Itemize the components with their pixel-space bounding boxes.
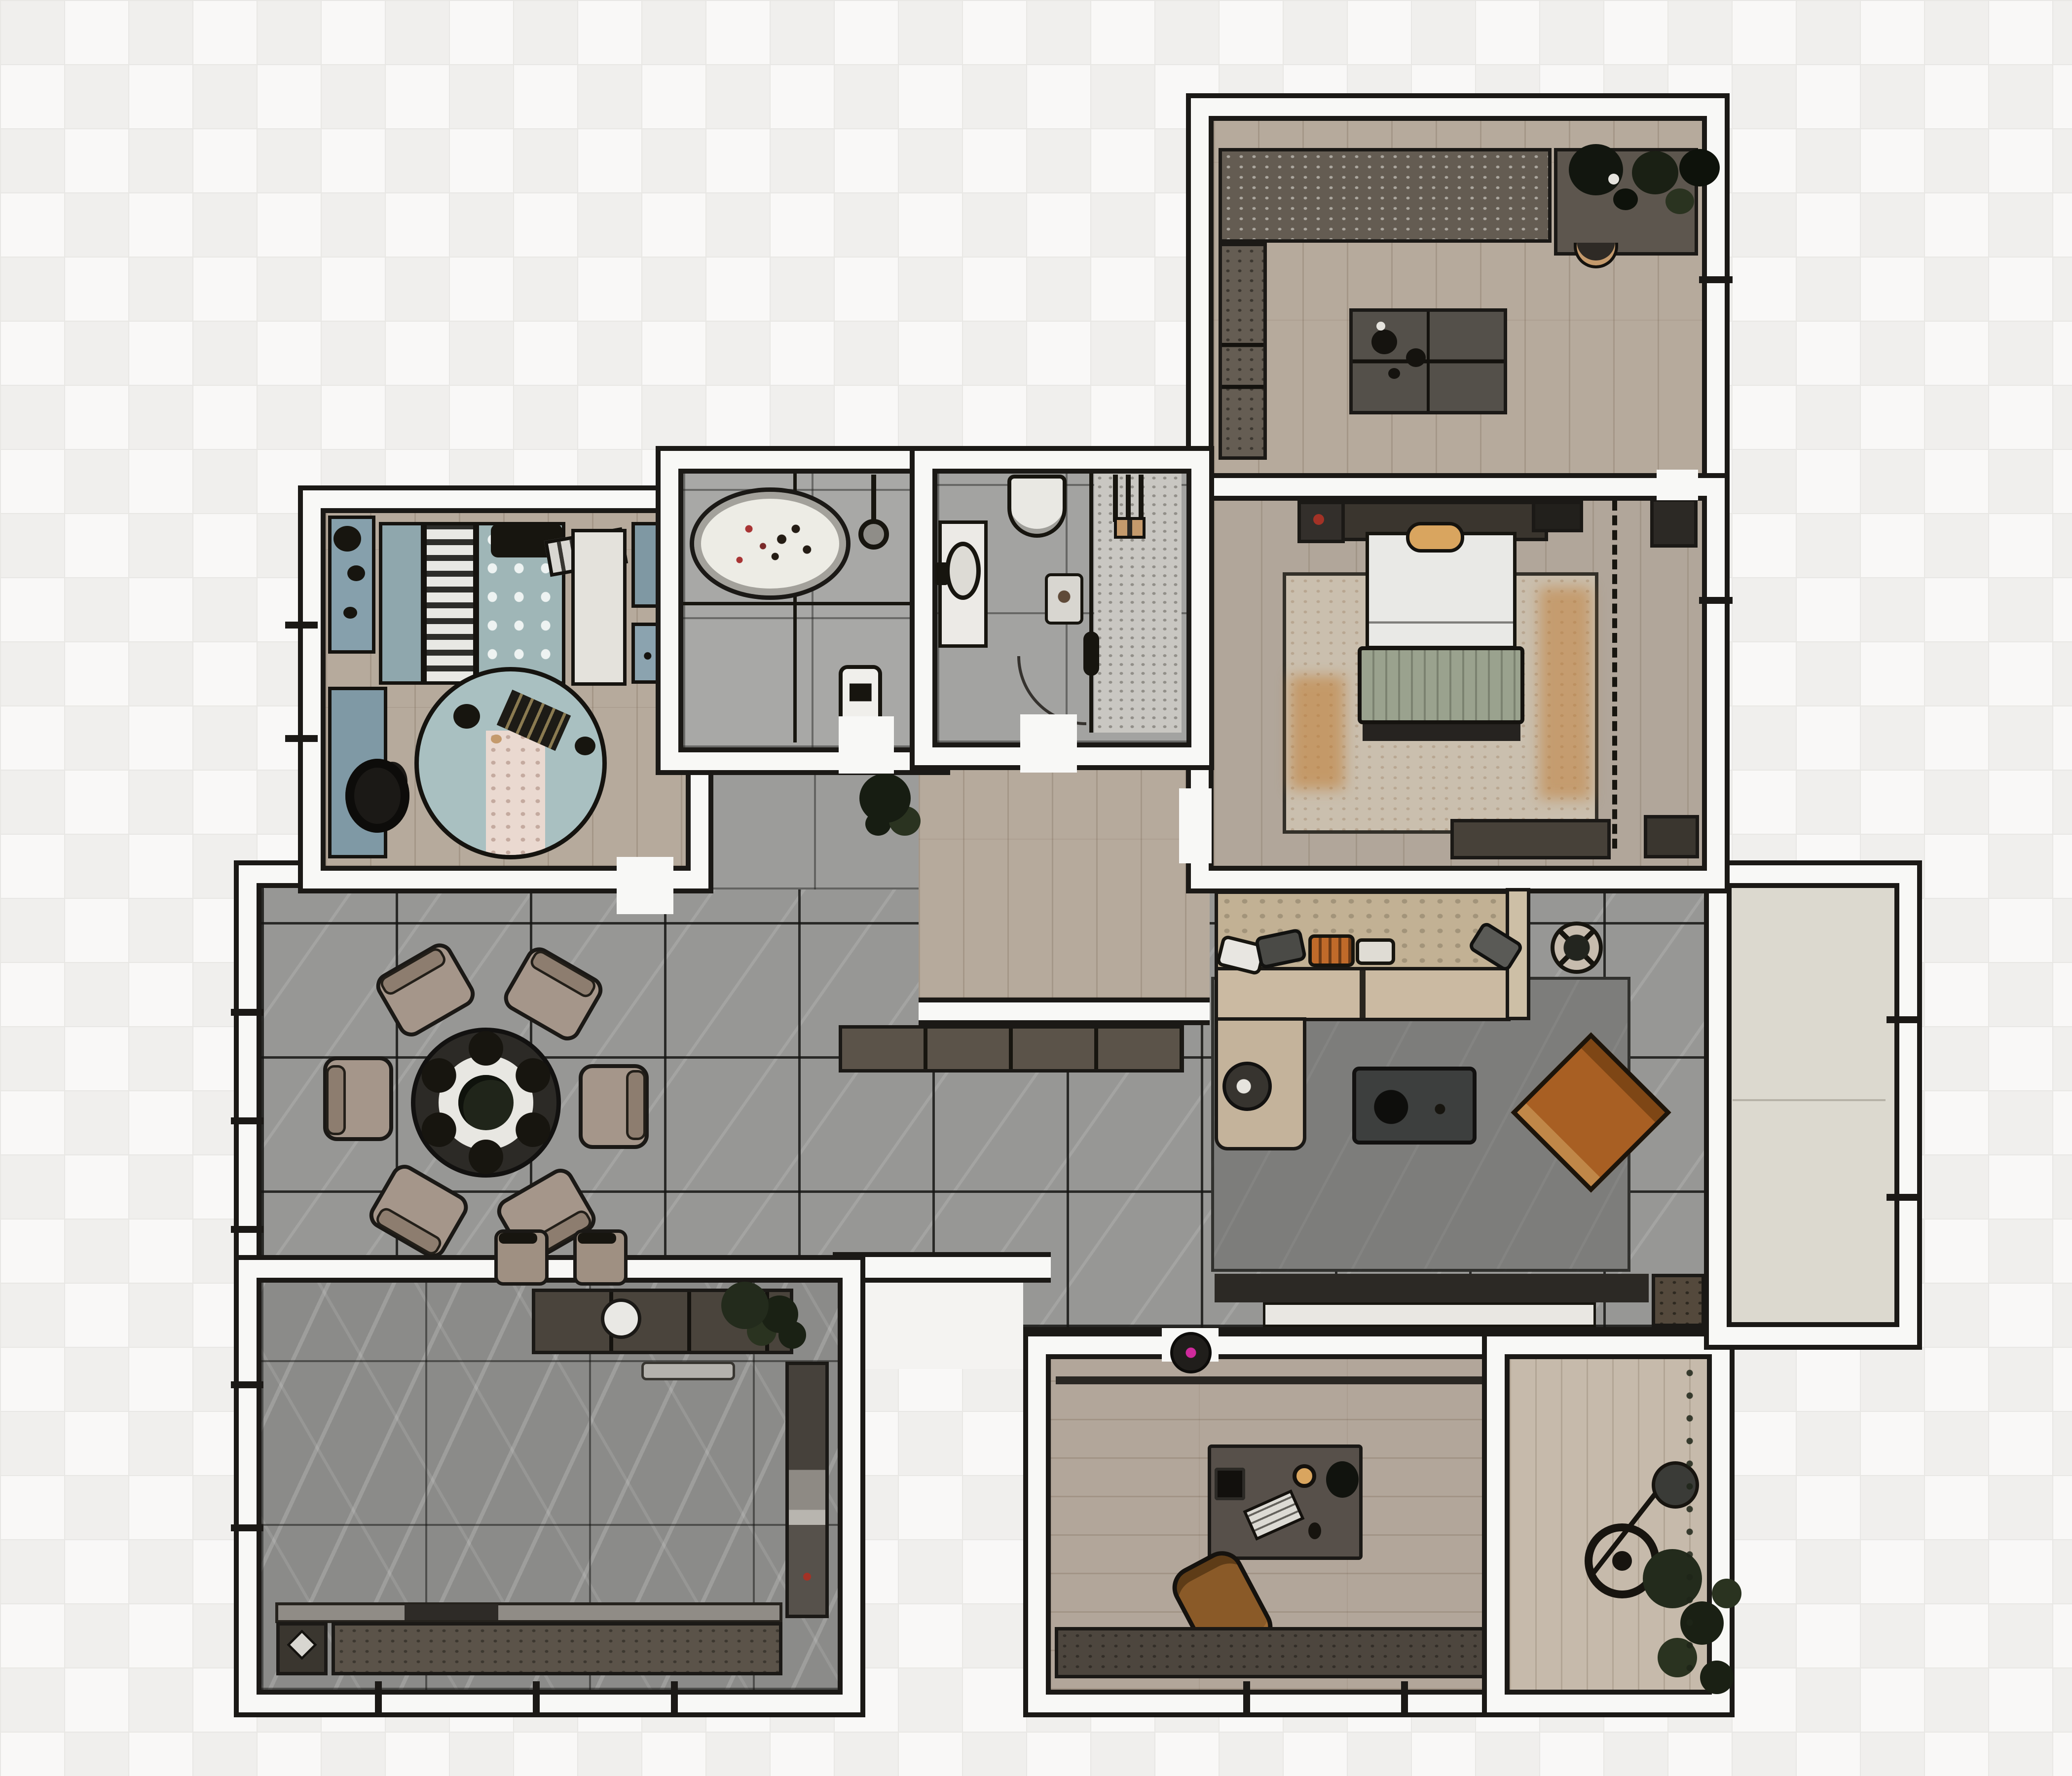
window-mullion: [1887, 1016, 1920, 1023]
room-balcony: [1727, 883, 1899, 1327]
place-setting: [469, 1031, 503, 1066]
wc-vanity-tap: [935, 562, 948, 585]
arc-lamp-base-dot: [1612, 1551, 1632, 1571]
window-mullion: [231, 1381, 263, 1388]
bed-accent-pillow: [1406, 522, 1464, 553]
window-mullion: [231, 1524, 263, 1531]
window-mullion: [231, 1117, 263, 1124]
window-mullion: [1699, 276, 1733, 283]
corridor-floor: [919, 770, 1210, 998]
bathtub-petals: [730, 508, 824, 577]
sofa-seats: [1215, 967, 1511, 1021]
void-wall: [833, 1252, 1051, 1283]
place-setting: [469, 1140, 503, 1174]
window-mullion: [231, 1009, 263, 1016]
kitchen-counter-plants: [721, 1282, 769, 1329]
closet-wardrobe-row: [1219, 148, 1552, 243]
kitchen-countertop-strip: [275, 1602, 782, 1623]
window-mullion: [1401, 1681, 1408, 1714]
window-mullion: [1699, 597, 1733, 604]
kids-bed-pattern-blanket: [423, 522, 477, 685]
kids-cabinet-teal-low: [631, 623, 681, 684]
kids-bed-left-panel: [379, 522, 424, 685]
kids-shelf-toys: [333, 526, 361, 552]
corridor-wall: [919, 998, 1210, 1025]
wc-bath-mat: [1045, 573, 1083, 625]
kitchen-cooktop-recess: [405, 1604, 498, 1620]
living-side-table: [1222, 1062, 1272, 1111]
hall-sideboard: [839, 1025, 1184, 1073]
door-walk-in-closet: [1657, 470, 1698, 500]
dining-centerpiece: [458, 1075, 514, 1130]
bathroom-glass-horizontal: [683, 602, 915, 605]
study-desk-lamp: [1293, 1464, 1316, 1488]
study-sideboard: [1055, 1627, 1501, 1678]
shower-arm: [871, 475, 876, 524]
kids-rug-toys: [453, 704, 480, 729]
floor-plan-page: { "document": { "type": "interior-floor-…: [0, 0, 2072, 1776]
dining-chair: [579, 1064, 649, 1149]
kitchen-accent-dot: [803, 1573, 811, 1581]
sofa-pillow-orange: [1308, 934, 1355, 967]
kids-round-rug: [414, 667, 607, 859]
window-mullion: [231, 1226, 263, 1233]
wc-shower-controls: [1114, 517, 1146, 539]
window-mullion: [671, 1681, 678, 1714]
living-corner-cabinet: [1652, 1274, 1705, 1327]
void-cover: [860, 1283, 1023, 1369]
kids-wardrobe-white: [571, 529, 627, 686]
bedroom-wardrobe-dashed-outline: [1612, 501, 1617, 849]
bedroom-tv-console: [1450, 819, 1611, 859]
bedroom-wall-tv: [1532, 501, 1583, 532]
toilet: [1007, 475, 1067, 538]
walk-in-shower-floor: [1094, 474, 1182, 733]
wc-shower-fixture: [1126, 475, 1131, 522]
window-mullion: [375, 1681, 382, 1714]
shower-head: [858, 519, 889, 550]
hall-corner-plant: [859, 774, 911, 823]
study-mouse: [1308, 1522, 1321, 1539]
kids-desk-chair: [345, 759, 409, 833]
kids-cabinet-teal: [631, 522, 681, 608]
closet-planter-dot: [1608, 174, 1619, 185]
closet-planter-foliage: [1569, 144, 1623, 195]
apartment-floor-plan: [0, 0, 2072, 1776]
sofa-pillow-cream: [1356, 938, 1395, 965]
bed-foot-bench: [1363, 724, 1520, 741]
window-mullion: [533, 1681, 540, 1714]
shower-glass-divider: [1089, 474, 1093, 733]
bedroom-closet-unit: [1650, 498, 1698, 548]
door-shower-room: [1020, 714, 1077, 773]
media-wall-strip: [1215, 1274, 1649, 1302]
study-desk-speaker: [1215, 1468, 1245, 1500]
study-wall-rail: [1056, 1376, 1490, 1384]
closet-cabinet-column: [1219, 243, 1267, 460]
bedroom-rug-orange-wash-left: [1290, 676, 1344, 789]
window-mullion: [1887, 1194, 1920, 1201]
study-desk-plant: [1326, 1461, 1359, 1498]
door-kids-bedroom: [617, 857, 673, 914]
tv-lowboard: [1263, 1302, 1596, 1327]
kitchen-floor-mat: [641, 1362, 735, 1380]
wc-vanity-basin: [945, 542, 981, 600]
living-plant-stand: [1551, 922, 1603, 974]
window-mullion: [285, 735, 318, 742]
coffee-table: [1352, 1067, 1477, 1145]
bedroom-door-mat: [1644, 815, 1699, 858]
bar-stool: [494, 1229, 549, 1286]
closet-island-dot: [1376, 322, 1385, 331]
window-mullion: [285, 622, 318, 629]
closet-island-items: [1371, 330, 1397, 354]
room-garden-strip: [1505, 1354, 1712, 1695]
bar-stool: [573, 1229, 628, 1286]
bed-sage-throw: [1358, 646, 1524, 724]
bedroom-speaker-dot: [1313, 514, 1324, 525]
closet-island-dresser: [1349, 308, 1507, 414]
door-bathroom: [839, 716, 894, 774]
kitchen-sink: [601, 1298, 641, 1339]
kids-rug-center-runner: [486, 731, 545, 859]
dining-chair: [323, 1056, 393, 1141]
garden-plant-fringe: [1681, 1362, 1703, 1682]
balcony-floor-seam: [1733, 1099, 1886, 1101]
kitchen-base-cabinets: [332, 1622, 782, 1675]
bedroom-rug-orange-wash-right: [1539, 587, 1591, 799]
door-master-bedroom: [1179, 788, 1212, 863]
robot-vacuum: [1170, 1332, 1212, 1373]
window-mullion: [1243, 1681, 1250, 1714]
